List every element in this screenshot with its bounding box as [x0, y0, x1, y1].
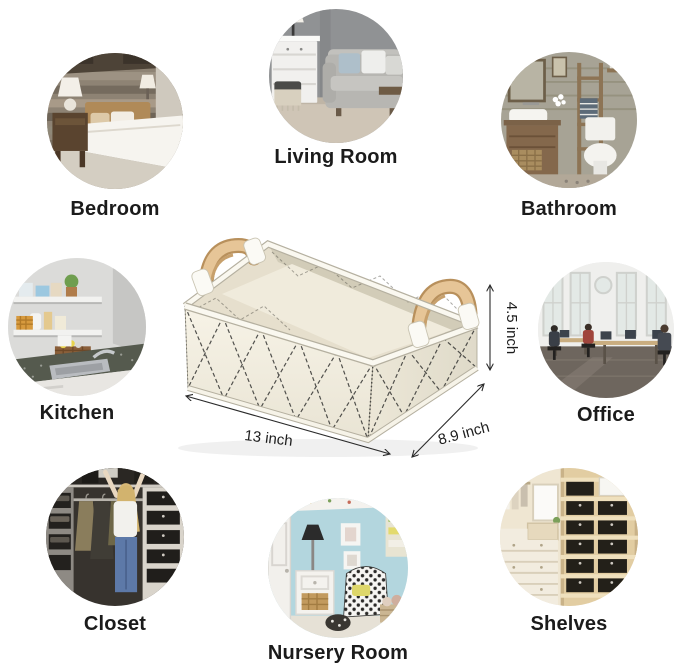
- bathroom-label: Bathroom: [479, 198, 659, 221]
- shelves-photo: [500, 468, 638, 606]
- closet-photo: [46, 468, 184, 606]
- kitchen-photo: [8, 258, 146, 396]
- closet-label: Closet: [25, 613, 205, 636]
- bedroom-label: Bedroom: [25, 198, 205, 221]
- storage-basket-illustration: 13 inch 8.9 inch 4.5 inch: [160, 222, 520, 468]
- kitchen-label: Kitchen: [0, 402, 167, 425]
- shelves-label: Shelves: [479, 613, 659, 636]
- living-room-scene-illustration: [269, 9, 403, 143]
- living-room-label: Living Room: [246, 146, 426, 169]
- living-room-photo: [269, 9, 403, 143]
- kitchen-scene-illustration: [8, 258, 146, 396]
- bedroom-photo: [47, 53, 183, 189]
- basket-shadow: [178, 439, 478, 457]
- office-scene-illustration: [538, 262, 674, 398]
- dimension-height: 4.5 inch: [490, 285, 520, 370]
- product-usage-infographic: Bedroom Living Room: [0, 0, 679, 670]
- bathroom-photo: [501, 52, 637, 188]
- dimension-depth-label: 8.9 inch: [436, 419, 491, 449]
- nursery-room-scene-illustration: [268, 498, 408, 638]
- dimension-height-label: 4.5 inch: [503, 302, 520, 355]
- shelves-scene-illustration: [500, 468, 638, 606]
- office-label: Office: [516, 404, 679, 427]
- basket-svg: 13 inch 8.9 inch 4.5 inch: [160, 222, 520, 468]
- nursery-room-label: Nursery Room: [248, 642, 428, 665]
- bathroom-scene-illustration: [501, 52, 637, 188]
- bedroom-scene-illustration: [47, 53, 183, 189]
- closet-scene-illustration: [46, 468, 184, 606]
- office-photo: [538, 262, 674, 398]
- nursery-room-photo: [268, 498, 408, 638]
